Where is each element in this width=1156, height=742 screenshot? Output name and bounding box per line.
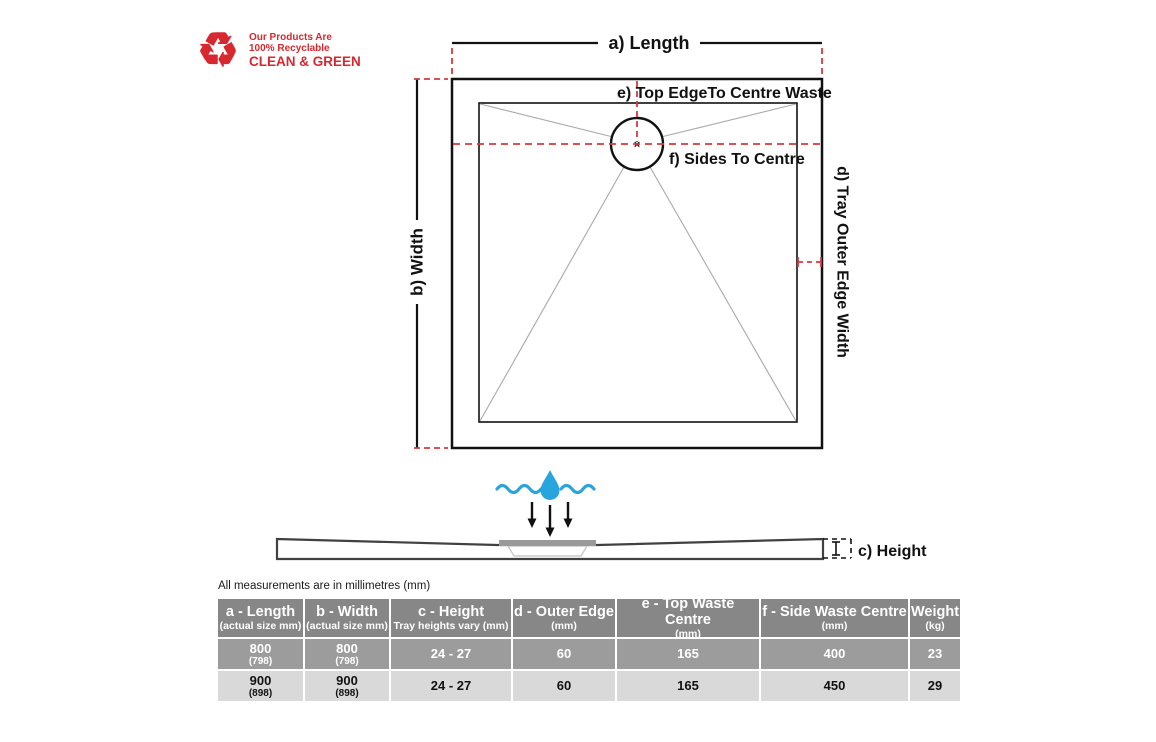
table-row-900-length: 900 (898): [218, 671, 303, 701]
dimensions-table: a - Length (actual size mm) b - Width (a…: [218, 599, 960, 701]
table-row-900-top-waste-centre: 165: [617, 671, 759, 701]
col-sub: (actual size mm): [306, 620, 388, 632]
table-row-800-side-waste-centre: 400: [761, 639, 908, 669]
cell-value: 60: [557, 647, 571, 661]
table-row-900-weight: 29: [910, 671, 960, 701]
col-header-weight: Weight (kg): [910, 599, 960, 637]
cell-value: 24 - 27: [431, 647, 471, 661]
cell-sub-value: (798): [249, 656, 272, 667]
cell-sub-value: (898): [249, 688, 272, 699]
cell-value: 165: [677, 679, 699, 693]
length-dimension: a) Length: [452, 33, 822, 77]
measurements-note: All measurements are in millimetres (mm): [218, 580, 430, 592]
waste-sump: [508, 546, 587, 556]
cell-value: 24 - 27: [431, 679, 471, 693]
cell-value: 900: [336, 674, 358, 688]
label-f-sides-to-centre: f) Sides To Centre: [669, 151, 805, 168]
col-title: d - Outer Edge: [514, 604, 614, 620]
table-row-800-length: 800 (798): [218, 639, 303, 669]
table-row-900-side-waste-centre: 450: [761, 671, 908, 701]
label-c-height: c) Height: [858, 543, 927, 560]
height-marker: [823, 539, 851, 558]
label-a-length: a) Length: [609, 33, 690, 53]
cell-value: 900: [250, 674, 272, 688]
cell-value: 23: [928, 647, 942, 661]
col-title: f - Side Waste Centre: [762, 604, 907, 620]
col-sub: (mm): [551, 620, 577, 632]
flow-arrows-icon: [528, 502, 573, 537]
col-title: Weight: [911, 604, 959, 620]
cell-sub-value: (898): [335, 688, 358, 699]
col-title: a - Length: [226, 604, 295, 620]
col-sub: (mm): [822, 620, 848, 632]
water-wave-left: [497, 486, 541, 493]
col-header-b-width: b - Width (actual size mm): [305, 599, 389, 637]
table-row-800-weight: 23: [910, 639, 960, 669]
label-e-top-edge-to-centre-waste: e) Top EdgeTo Centre Waste: [617, 85, 832, 102]
width-dimension: b) Width: [408, 79, 449, 448]
table-row-800-outer-edge: 60: [513, 639, 615, 669]
col-sub: Tray heights vary (mm): [394, 620, 509, 632]
label-b-width: b) Width: [408, 228, 427, 296]
table-row-900-height: 24 - 27: [391, 671, 511, 701]
col-header-d-outer-edge: d - Outer Edge (mm): [513, 599, 615, 637]
table-row-900-outer-edge: 60: [513, 671, 615, 701]
shower-tray-spec-sheet: ♻ Our Products Are 100% Recyclable CLEAN…: [0, 0, 1156, 742]
col-sub: (actual size mm): [220, 620, 302, 632]
cell-value: 400: [824, 647, 846, 661]
table-row-800-width: 800 (798): [305, 639, 389, 669]
cell-value: 60: [557, 679, 571, 693]
cell-value: 800: [336, 642, 358, 656]
label-d-tray-outer-edge-width: d) Tray Outer Edge Width: [834, 166, 851, 358]
col-title: c - Height: [418, 604, 484, 620]
cell-value: 800: [250, 642, 272, 656]
col-sub: (kg): [925, 620, 944, 632]
col-header-c-height: c - Height Tray heights vary (mm): [391, 599, 511, 637]
col-header-f-side-waste-centre: f - Side Waste Centre (mm): [761, 599, 908, 637]
water-drop-icon: [497, 470, 594, 500]
cell-value: 450: [824, 679, 846, 693]
waste-grate: [499, 540, 596, 546]
col-header-a-length: a - Length (actual size mm): [218, 599, 303, 637]
waste-centre-marker: ×: [634, 139, 640, 151]
col-header-e-top-waste-centre: e - Top Waste Centre (mm): [617, 599, 759, 637]
col-title: e - Top Waste Centre: [617, 596, 759, 628]
water-wave-right: [561, 486, 594, 493]
table-row-800-height: 24 - 27: [391, 639, 511, 669]
cell-value: 165: [677, 647, 699, 661]
cell-value: 29: [928, 679, 942, 693]
col-title: b - Width: [316, 604, 378, 620]
table-row-800-top-waste-centre: 165: [617, 639, 759, 669]
cell-sub-value: (798): [335, 656, 358, 667]
table-row-900-width: 900 (898): [305, 671, 389, 701]
